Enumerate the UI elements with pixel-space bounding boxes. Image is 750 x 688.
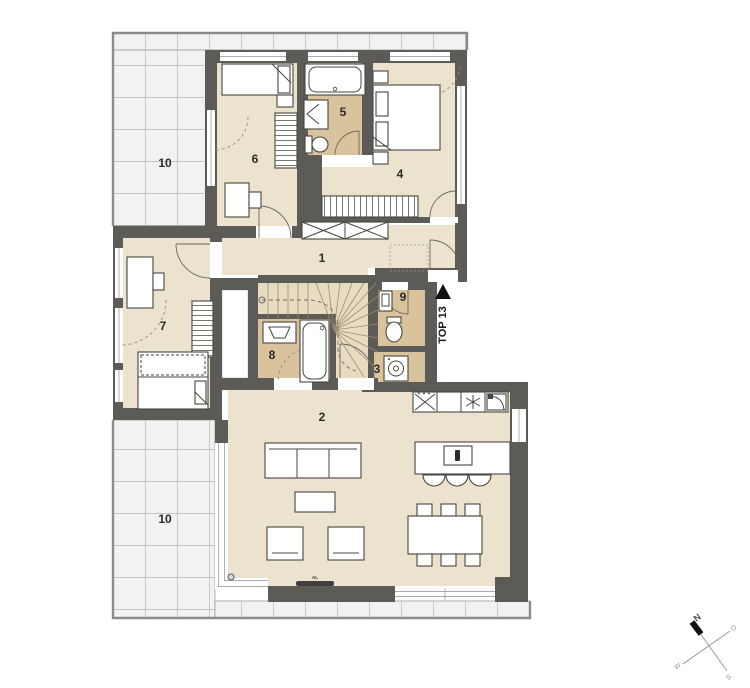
dining-chair [441,554,456,566]
bed-double-room4 [373,71,440,164]
dining-chair [417,504,432,516]
compass-icon: N O W S [673,612,738,682]
compass-w: W [673,662,683,672]
dining-chair [417,554,432,566]
closet-corridor [302,222,388,239]
bed-single-room7 [138,352,208,409]
window [115,370,123,402]
bathtub-vertical-icon [300,320,329,382]
kitchen-island [415,442,510,474]
compass-s: S [725,673,733,682]
shower-icon [304,100,328,129]
wardrobe-room6 [275,113,297,168]
window [207,110,215,186]
compass-north-needle [692,622,701,634]
toilet-icon-2 [386,317,402,342]
armchair [267,527,303,560]
glass-door-south [395,588,495,600]
window [308,52,358,61]
floor-plan-drawing: 1 2 3 4 5 6 7 8 9 10 10 AL TOP 13 N O W … [0,0,750,688]
fridge-icon [487,394,506,410]
dining-table [408,516,482,554]
room-label-7: 7 [160,319,167,333]
room-label-2: 2 [319,410,326,424]
room-label-6: 6 [252,152,259,166]
coffee-table [295,492,335,512]
sofa [265,443,361,478]
dining-chair [441,504,456,516]
bar-stools [423,475,491,486]
terrace-label-upper: 10 [158,156,172,170]
armchair [328,527,364,560]
washbasin-icon [263,322,296,343]
window [115,248,123,298]
room-label-3: 3 [374,362,381,376]
sink-small-icon [379,291,392,311]
washing-machine-icon [384,356,408,381]
window [457,86,465,204]
wardrobe-room7 [192,301,213,357]
corridor-floor-mid [305,268,368,275]
window [390,52,450,61]
entry-marker: TOP 13 [435,284,451,344]
shaft-void [222,290,248,378]
al-label: AL [312,575,318,580]
window [512,409,526,442]
room-label-8: 8 [269,348,276,362]
bathtub-icon [305,64,365,95]
dining-chair [465,554,480,566]
compass-o: O [730,624,739,633]
terrace-label-lower: 10 [158,512,172,526]
kitchen-counter [413,392,508,412]
window [115,308,123,363]
corridor-floor-left [217,238,305,275]
unit-label: TOP 13 [437,306,449,344]
wardrobe-room4 [322,196,418,217]
toilet-icon [305,136,328,153]
dining-chair [465,504,480,516]
room-label-4: 4 [397,167,404,181]
floor-plan-page: 1 2 3 4 5 6 7 8 9 10 10 AL TOP 13 N O W … [0,0,750,688]
window [220,52,286,61]
room-label-9: 9 [400,290,407,304]
room-label-1: 1 [319,251,326,265]
vent-bar [296,581,334,586]
entry-arrow-icon [435,284,451,299]
drain-icon [228,574,234,580]
room-label-5: 5 [340,105,347,119]
dining-set [408,504,482,566]
